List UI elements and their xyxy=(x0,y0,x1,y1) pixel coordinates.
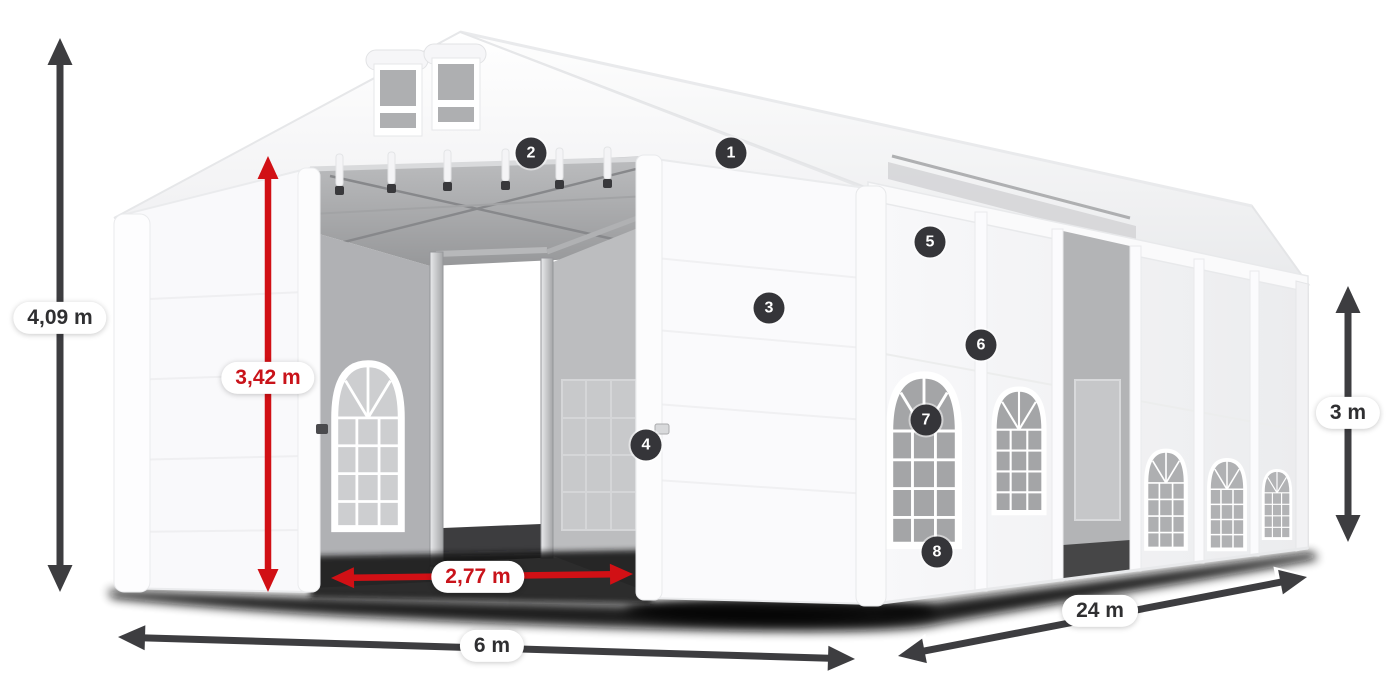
side-pole-cover-3 xyxy=(1130,246,1141,571)
roof-window-left xyxy=(366,50,428,136)
dimension-entrance-height: 3,42 m xyxy=(221,362,314,394)
marker-5: 5 xyxy=(915,227,946,258)
dimension-entrance-width: 2,77 m xyxy=(431,561,524,593)
mid-frame-pole-left xyxy=(430,252,443,566)
front-entrance-interior xyxy=(310,147,652,604)
door-right-edge-roll xyxy=(636,155,662,600)
marker-4: 4 xyxy=(631,430,662,461)
mid-frame-pole-right xyxy=(541,258,553,558)
door-handle-left xyxy=(316,424,328,434)
side-window-5 xyxy=(1263,470,1291,538)
roof-window-glass xyxy=(380,70,416,128)
front-right-corner-pole xyxy=(856,186,886,606)
roof-window-right xyxy=(424,44,486,130)
mid-frame-top-bar xyxy=(436,250,547,254)
dimension-length: 24 m xyxy=(1062,595,1138,627)
marker-3: 3 xyxy=(754,293,785,324)
open-bay-inner-window xyxy=(1075,380,1120,520)
side-window-1 xyxy=(890,375,959,545)
marker-1: 1 xyxy=(716,138,747,169)
roof-window-glass xyxy=(438,64,474,122)
interior-right-panel-window xyxy=(562,380,636,530)
dimension-width: 6 m xyxy=(460,630,524,662)
dimension-total-height: 4,09 m xyxy=(13,302,106,334)
marker-7: 7 xyxy=(911,405,942,436)
marker-8: 8 xyxy=(922,537,953,568)
front-right-wall xyxy=(648,158,874,604)
front-left-corner-pole xyxy=(114,214,150,592)
door-handle-right xyxy=(655,424,669,434)
tent-dimension-diagram: 4,09 m 3,42 m 2,77 m 6 m 24 m 3 m 1 2 3 … xyxy=(0,0,1400,700)
interior-left-window xyxy=(335,364,402,529)
see-through-opening xyxy=(443,266,541,532)
side-pole-cover-4 xyxy=(1194,259,1204,563)
side-pole-cover-2 xyxy=(1052,229,1063,581)
side-window-4 xyxy=(1209,460,1245,549)
side-pole-cover-1 xyxy=(975,212,987,591)
side-window-2 xyxy=(994,389,1044,513)
tent-illustration xyxy=(0,0,1400,700)
dimension-side-wall-height: 3 m xyxy=(1316,397,1380,429)
marker-2: 2 xyxy=(516,138,547,169)
side-pole-cover-5 xyxy=(1250,271,1259,556)
roof-window-bar xyxy=(380,106,416,113)
side-window-3 xyxy=(1146,451,1186,549)
roof-window-bar xyxy=(438,100,474,107)
rear-corner-roll xyxy=(1296,281,1308,551)
marker-6: 6 xyxy=(966,330,997,361)
